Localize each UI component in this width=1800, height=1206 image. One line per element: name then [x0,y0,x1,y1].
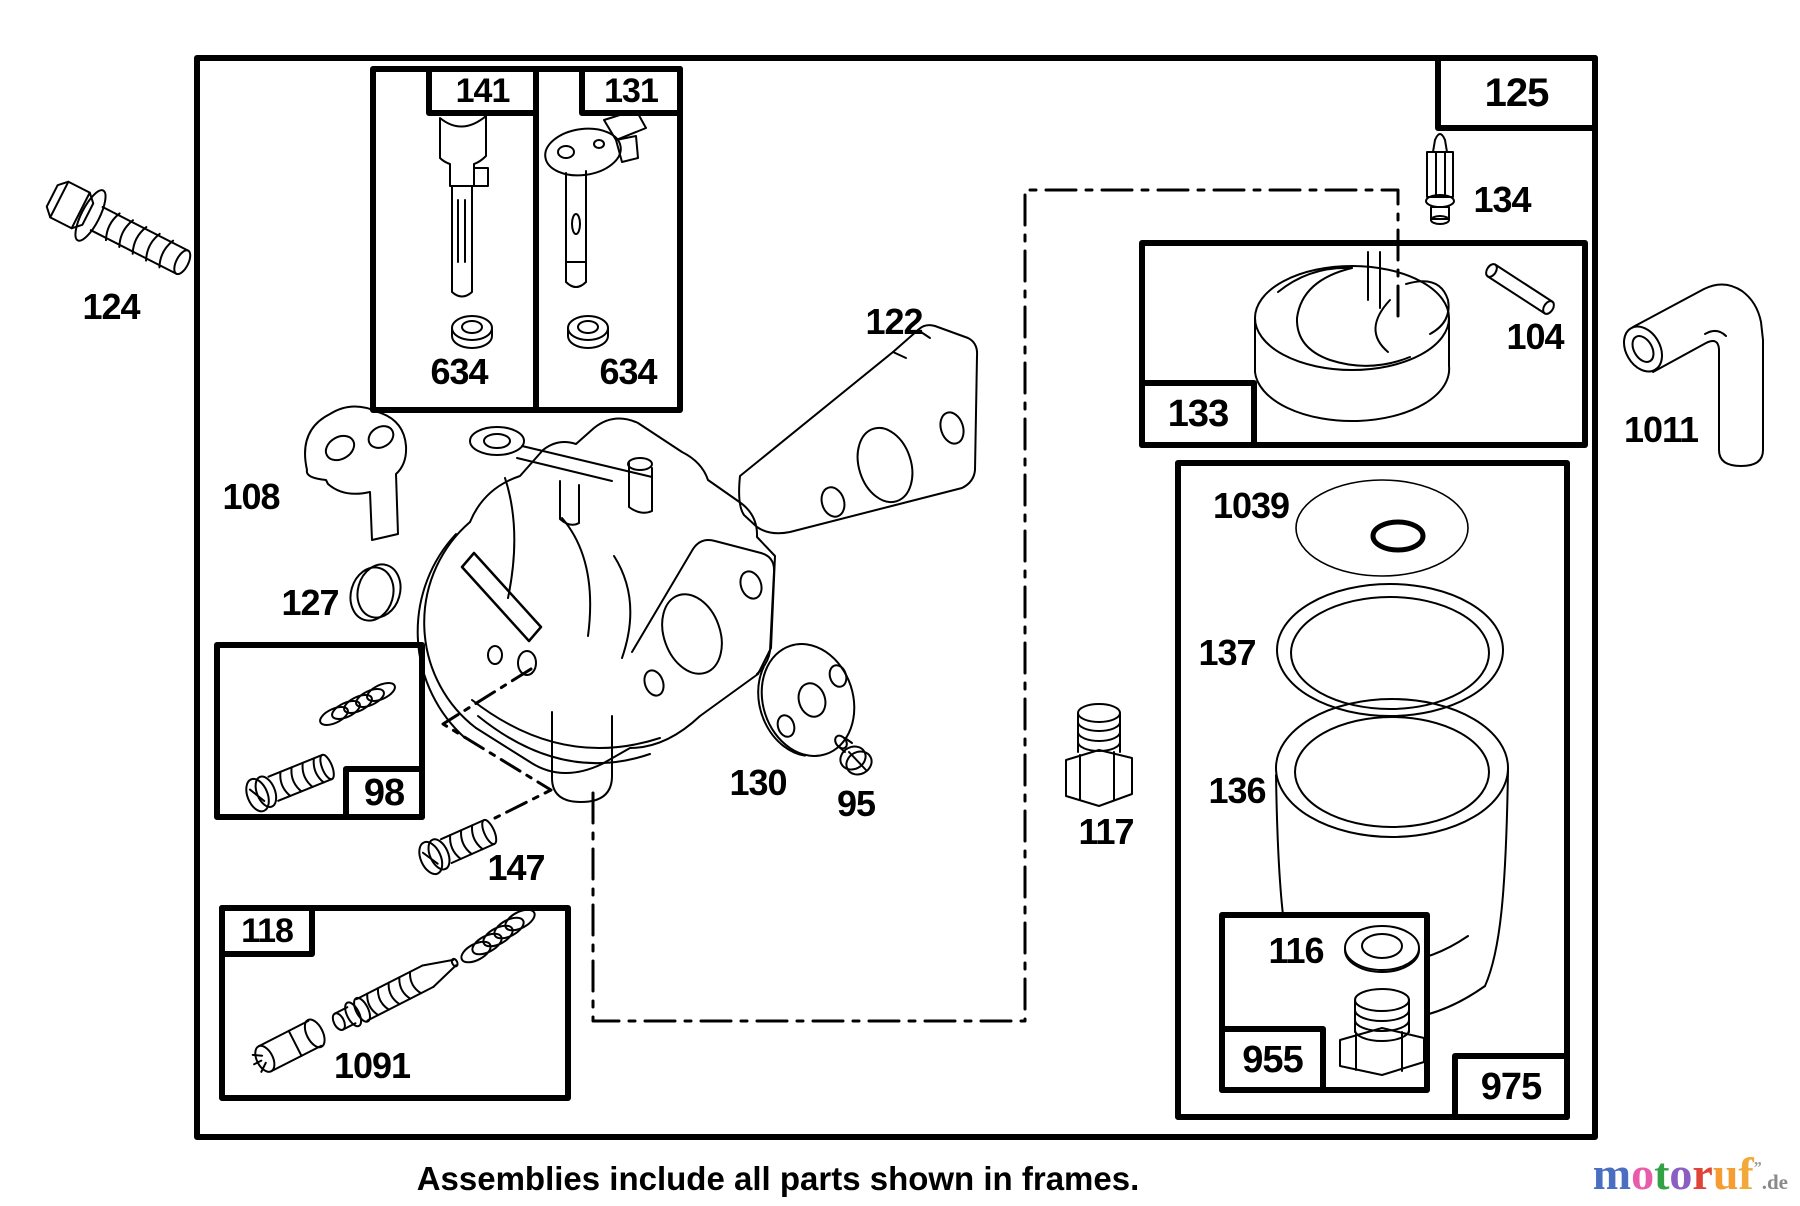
part-label-141: 141 [429,69,536,113]
part-label-975: 975 [1455,1056,1567,1117]
part-label-116: 116 [1268,933,1323,969]
assembly-centerlines [593,190,1398,1021]
part-label-147: 147 [487,850,544,886]
seat-1091-drawing [247,1016,328,1077]
part-label-1039: 1039 [1213,488,1289,524]
carburetor-drawing [418,419,775,802]
motoruf-wordmark: motoruf [1593,1148,1754,1199]
part-label-1011: 1011 [1624,412,1698,448]
motoruf-logo[interactable]: motoruf”.de [1593,1147,1788,1200]
part-label-634a: 634 [430,354,487,390]
part-label-118: 118 [222,908,312,954]
spacer-122-drawing [739,325,977,533]
part-label-133: 133 [1142,383,1254,445]
part-label-131: 131 [582,69,680,113]
part-label-117: 117 [1078,814,1133,850]
needle-valve-134-drawing [1426,134,1454,224]
gasket-108-drawing [305,406,406,540]
float-133-drawing [1255,252,1449,421]
choke-shaft-131-drawing [542,110,646,348]
logo-mark: ” [1754,1160,1762,1177]
choke-plate-127-drawing [344,559,406,625]
needle-1091-drawing [329,950,463,1036]
logo-domain-suffix: .de [1762,1170,1788,1194]
part-label-130: 130 [729,765,786,801]
spring-98-drawing [317,679,397,728]
spring-118-drawing [458,905,538,966]
leader-line-147 [443,669,551,821]
part-label-104: 104 [1506,319,1563,355]
part-label-127: 127 [281,585,338,621]
plug-117-drawing [1066,704,1132,806]
part-label-1091: 1091 [334,1048,410,1084]
part-label-98: 98 [346,769,422,817]
part-label-108: 108 [222,479,279,515]
part-label-124: 124 [82,289,139,325]
part-label-137: 137 [1198,635,1255,671]
screw-95-drawing [833,733,876,778]
part-label-134: 134 [1473,182,1530,218]
part-label-95: 95 [837,786,875,822]
part-label-122: 122 [865,304,922,340]
part-label-634b: 634 [599,354,656,390]
parts-diagram-page: 124 634 634 108 127 122 130 95 147 1091 … [0,0,1800,1206]
part-label-955: 955 [1222,1029,1323,1090]
oring-137-drawing [1277,584,1503,716]
throttle-shaft-141-drawing [440,116,492,348]
part-label-125: 125 [1438,58,1595,128]
bolt-124-drawing [39,171,200,290]
part-label-136: 136 [1208,773,1265,809]
pin-104-drawing [1484,262,1556,316]
filter-disc-1039-drawing [1296,480,1468,576]
caption: Assemblies include all parts shown in fr… [378,1160,1178,1198]
